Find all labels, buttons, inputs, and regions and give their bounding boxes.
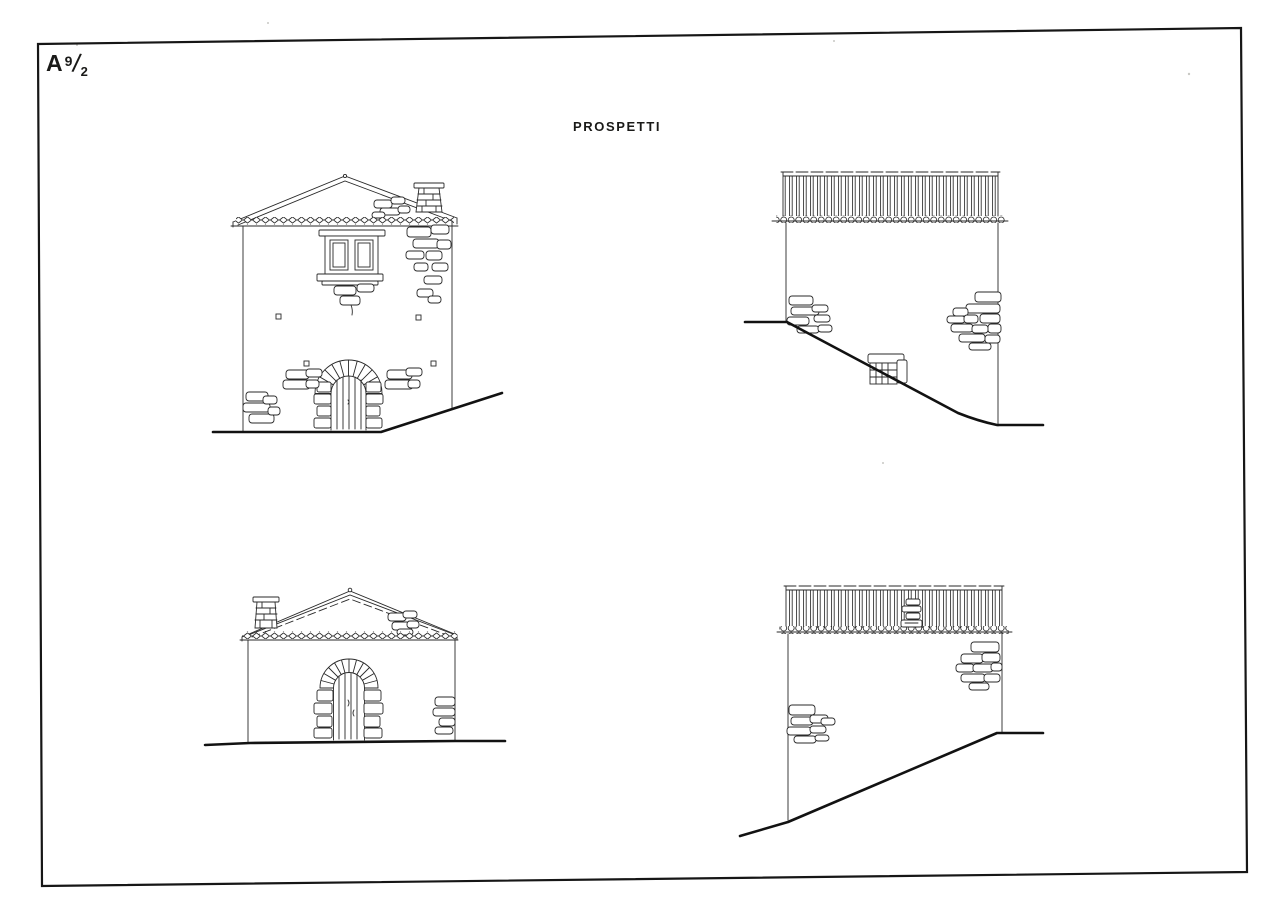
tiled-roof-band — [772, 172, 1008, 223]
roof-stone-patch — [372, 197, 410, 218]
ground-line — [740, 733, 1043, 836]
ground-line — [205, 741, 505, 745]
elevations-drawing — [0, 0, 1280, 913]
door-jamb-quoins — [314, 382, 383, 428]
stone-patch-left-of-door — [283, 369, 322, 389]
tiled-roof-band — [777, 586, 1012, 634]
door-jamb-quoins — [314, 690, 383, 738]
figure-rear-elevation — [205, 588, 505, 745]
stone-patch-right — [947, 292, 1001, 350]
stone-patch-right-edge — [433, 697, 455, 734]
stone-patch-left-middle — [787, 705, 835, 743]
casement-window — [317, 230, 385, 285]
drawing-sheet: A 9 / 2 PROSPETTI — [0, 0, 1280, 913]
stone-patch-right-top — [956, 642, 1002, 690]
eave-tile-band — [231, 217, 458, 226]
chimney — [414, 183, 444, 212]
stone-patch-bottom-left — [243, 392, 280, 423]
figure-side-elevation-downhill — [745, 172, 1043, 426]
chimney — [253, 597, 279, 628]
putlog-holes — [276, 314, 436, 366]
stone-patch-under-window — [334, 284, 374, 315]
figure-side-elevation-uphill — [740, 586, 1043, 836]
wall-edges — [248, 639, 455, 742]
sheet-border-frame — [38, 28, 1247, 886]
stone-patch-right-wall — [406, 225, 451, 303]
eave-tile-band — [240, 631, 458, 640]
stone-patch-left — [787, 296, 832, 333]
figure-front-elevation — [213, 174, 502, 432]
stone-patch-right-of-door — [385, 368, 422, 389]
